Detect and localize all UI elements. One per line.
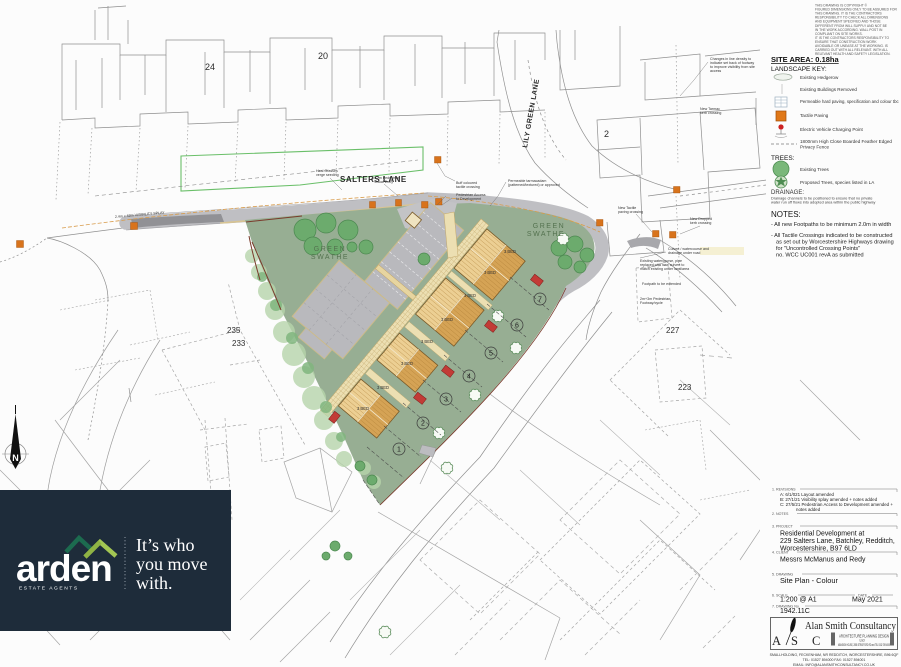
svg-text:Worcestershire, B97 6LD: Worcestershire, B97 6LD — [780, 546, 857, 553]
svg-text:A: A — [772, 634, 781, 648]
svg-text:Site Plan - Colour: Site Plan - Colour — [780, 576, 838, 585]
svg-text:kerb crossing: kerb crossing — [690, 221, 711, 225]
svg-text:Proposed Trees, species listed: Proposed Trees, species listed in LA — [800, 180, 875, 185]
svg-text:227: 227 — [666, 326, 680, 335]
svg-text:SWATHE: SWATHE — [527, 231, 565, 238]
svg-text:May 2021: May 2021 — [852, 597, 883, 604]
svg-text:Footpath to be extended: Footpath to be extended — [642, 282, 681, 286]
svg-text:3 BED: 3 BED — [401, 361, 413, 366]
svg-text:1: 1 — [397, 447, 401, 454]
svg-text:4: 4 — [467, 374, 471, 381]
svg-text:as set out by Worcestershire H: as set out by Worcestershire Highways dr… — [776, 240, 894, 246]
svg-text:for "Uncontrolled Crossing Poi: for "Uncontrolled Crossing Points" — [776, 246, 860, 252]
svg-text:Messrs McManus and Redy: Messrs McManus and Redy — [780, 557, 866, 564]
svg-text:water run off flows into adopt: water run off flows into adopted area wi… — [771, 201, 876, 205]
svg-text:with.: with. — [136, 573, 173, 593]
svg-text:3 BED: 3 BED — [377, 385, 389, 390]
svg-text:access: access — [710, 69, 721, 73]
svg-text:24: 24 — [205, 62, 215, 72]
svg-text:Electric Vehicle Charging Poin: Electric Vehicle Charging Point — [800, 127, 864, 132]
svg-text:EMAIL: INFO@ALANSMITHCONSULTAN: EMAIL: INFO@ALANSMITHCONSULTANCY.CO.UK — [793, 663, 876, 667]
svg-text:kerb crossing: kerb crossing — [700, 111, 721, 115]
svg-text:20: 20 — [318, 51, 328, 61]
svg-text:3: 3 — [444, 397, 448, 404]
svg-text:tactile crossing: tactile crossing — [456, 185, 480, 189]
svg-text:It’s who: It’s who — [136, 535, 195, 555]
svg-text:2. NOTES: 2. NOTES — [772, 512, 789, 516]
svg-text:3 BED: 3 BED — [421, 339, 433, 344]
svg-text:1942.11C: 1942.11C — [780, 608, 810, 615]
svg-text:1800mm High Close Boarded Feat: 1800mm High Close Boarded Feather Edged — [800, 139, 892, 144]
svg-text:Alan Smith Consultancy: Alan Smith Consultancy — [805, 621, 897, 632]
svg-text:Tactile Paving: Tactile Paving — [800, 113, 829, 118]
svg-text:no. WCC UC001 revA as submitte: no. WCC UC001 revA as submitted — [776, 253, 864, 259]
svg-text:match existing under land/area: match existing under land/area — [640, 267, 689, 271]
svg-text:Existing Buildings Removed: Existing Buildings Removed — [800, 87, 857, 92]
svg-text:233: 233 — [232, 339, 246, 348]
svg-text:drainage under road: drainage under road — [668, 251, 700, 255]
svg-text:229 Salters Lane, Batchley, Re: 229 Salters Lane, Batchley, Redditch, — [780, 538, 895, 545]
svg-text:1. REVISIONS: 1. REVISIONS — [772, 488, 796, 492]
svg-text:3 BED: 3 BED — [504, 249, 516, 254]
svg-text:GREEN: GREEN — [533, 223, 565, 230]
svg-text:LANDSCAPE KEY:: LANDSCAPE KEY: — [771, 66, 827, 73]
svg-text:arden: arden — [16, 548, 112, 589]
svg-text:223: 223 — [678, 383, 692, 392]
svg-text:you move: you move — [136, 554, 208, 574]
svg-text:to Development: to Development — [456, 197, 481, 201]
svg-text:SWATHE: SWATHE — [311, 254, 349, 261]
svg-text:Existing Trees: Existing Trees — [800, 167, 830, 172]
svg-text:ESTATE AGENTS: ESTATE AGENTS — [19, 586, 79, 592]
svg-text:Permeable hard paving, specifi: Permeable hard paving, specification and… — [800, 99, 899, 104]
svg-text:Ltd: Ltd — [860, 639, 865, 643]
svg-text:TEL: 01527 894000 FAX: 01527: TEL: 01527 894000 FAX: 01527 894001 — [803, 658, 866, 662]
svg-text:DRAINAGE:: DRAINAGE: — [771, 190, 804, 196]
svg-text:3 BED: 3 BED — [484, 270, 496, 275]
svg-text:Residential Development at: Residential Development at — [780, 531, 864, 538]
svg-text:7: 7 — [538, 297, 542, 304]
svg-text:(patterned/textured) or approv: (patterned/textured) or approved — [508, 183, 560, 187]
svg-text:3 BED: 3 BED — [441, 317, 453, 322]
svg-text:notes added: notes added — [796, 507, 821, 512]
svg-text:NOTES:: NOTES: — [771, 210, 801, 219]
svg-text:3. PROJECT: 3. PROJECT — [772, 525, 794, 529]
svg-text:GREEN: GREEN — [314, 246, 346, 253]
svg-text:2: 2 — [604, 129, 609, 139]
svg-text:Existing Hedgerow: Existing Hedgerow — [800, 75, 839, 80]
svg-text:3 BED: 3 BED — [357, 406, 369, 411]
svg-text:paving crossing: paving crossing — [618, 210, 643, 214]
svg-text:- All new Footpaths to be min: - All new Footpaths to be minimum 2.0m i… — [771, 222, 891, 228]
svg-text:Privacy Fence: Privacy Fence — [800, 145, 830, 150]
svg-text:MANSION HOUSE, 2855 STRATFORD: MANSION HOUSE, 2855 STRATFORD RD and TEL… — [838, 643, 890, 647]
svg-text:3 BED: 3 BED — [464, 293, 476, 298]
svg-text:5: 5 — [489, 351, 493, 358]
svg-text:235: 235 — [227, 326, 241, 335]
svg-text:verge seeding: verge seeding — [316, 173, 339, 177]
svg-text:C: C — [812, 634, 820, 648]
svg-text:- All Tactile Crossings indic: - All Tactile Crossings indicated to be … — [771, 233, 892, 239]
svg-text:1:200 @ A1: 1:200 @ A1 — [780, 597, 817, 604]
svg-text:N: N — [12, 453, 19, 463]
svg-text:SITE AREA: 0.18ha: SITE AREA: 0.18ha — [771, 55, 839, 64]
svg-text:SMALLHOLDING, FECKENHAM, NR RE: SMALLHOLDING, FECKENHAM, NR REDDITCH, WO… — [770, 653, 899, 657]
svg-text:Visual Entry: Visual Entry — [374, 180, 393, 184]
svg-text:6: 6 — [515, 323, 519, 330]
svg-text:S: S — [791, 634, 798, 648]
svg-text:Footway/cycle: Footway/cycle — [640, 301, 663, 305]
svg-text:2: 2 — [421, 421, 425, 428]
